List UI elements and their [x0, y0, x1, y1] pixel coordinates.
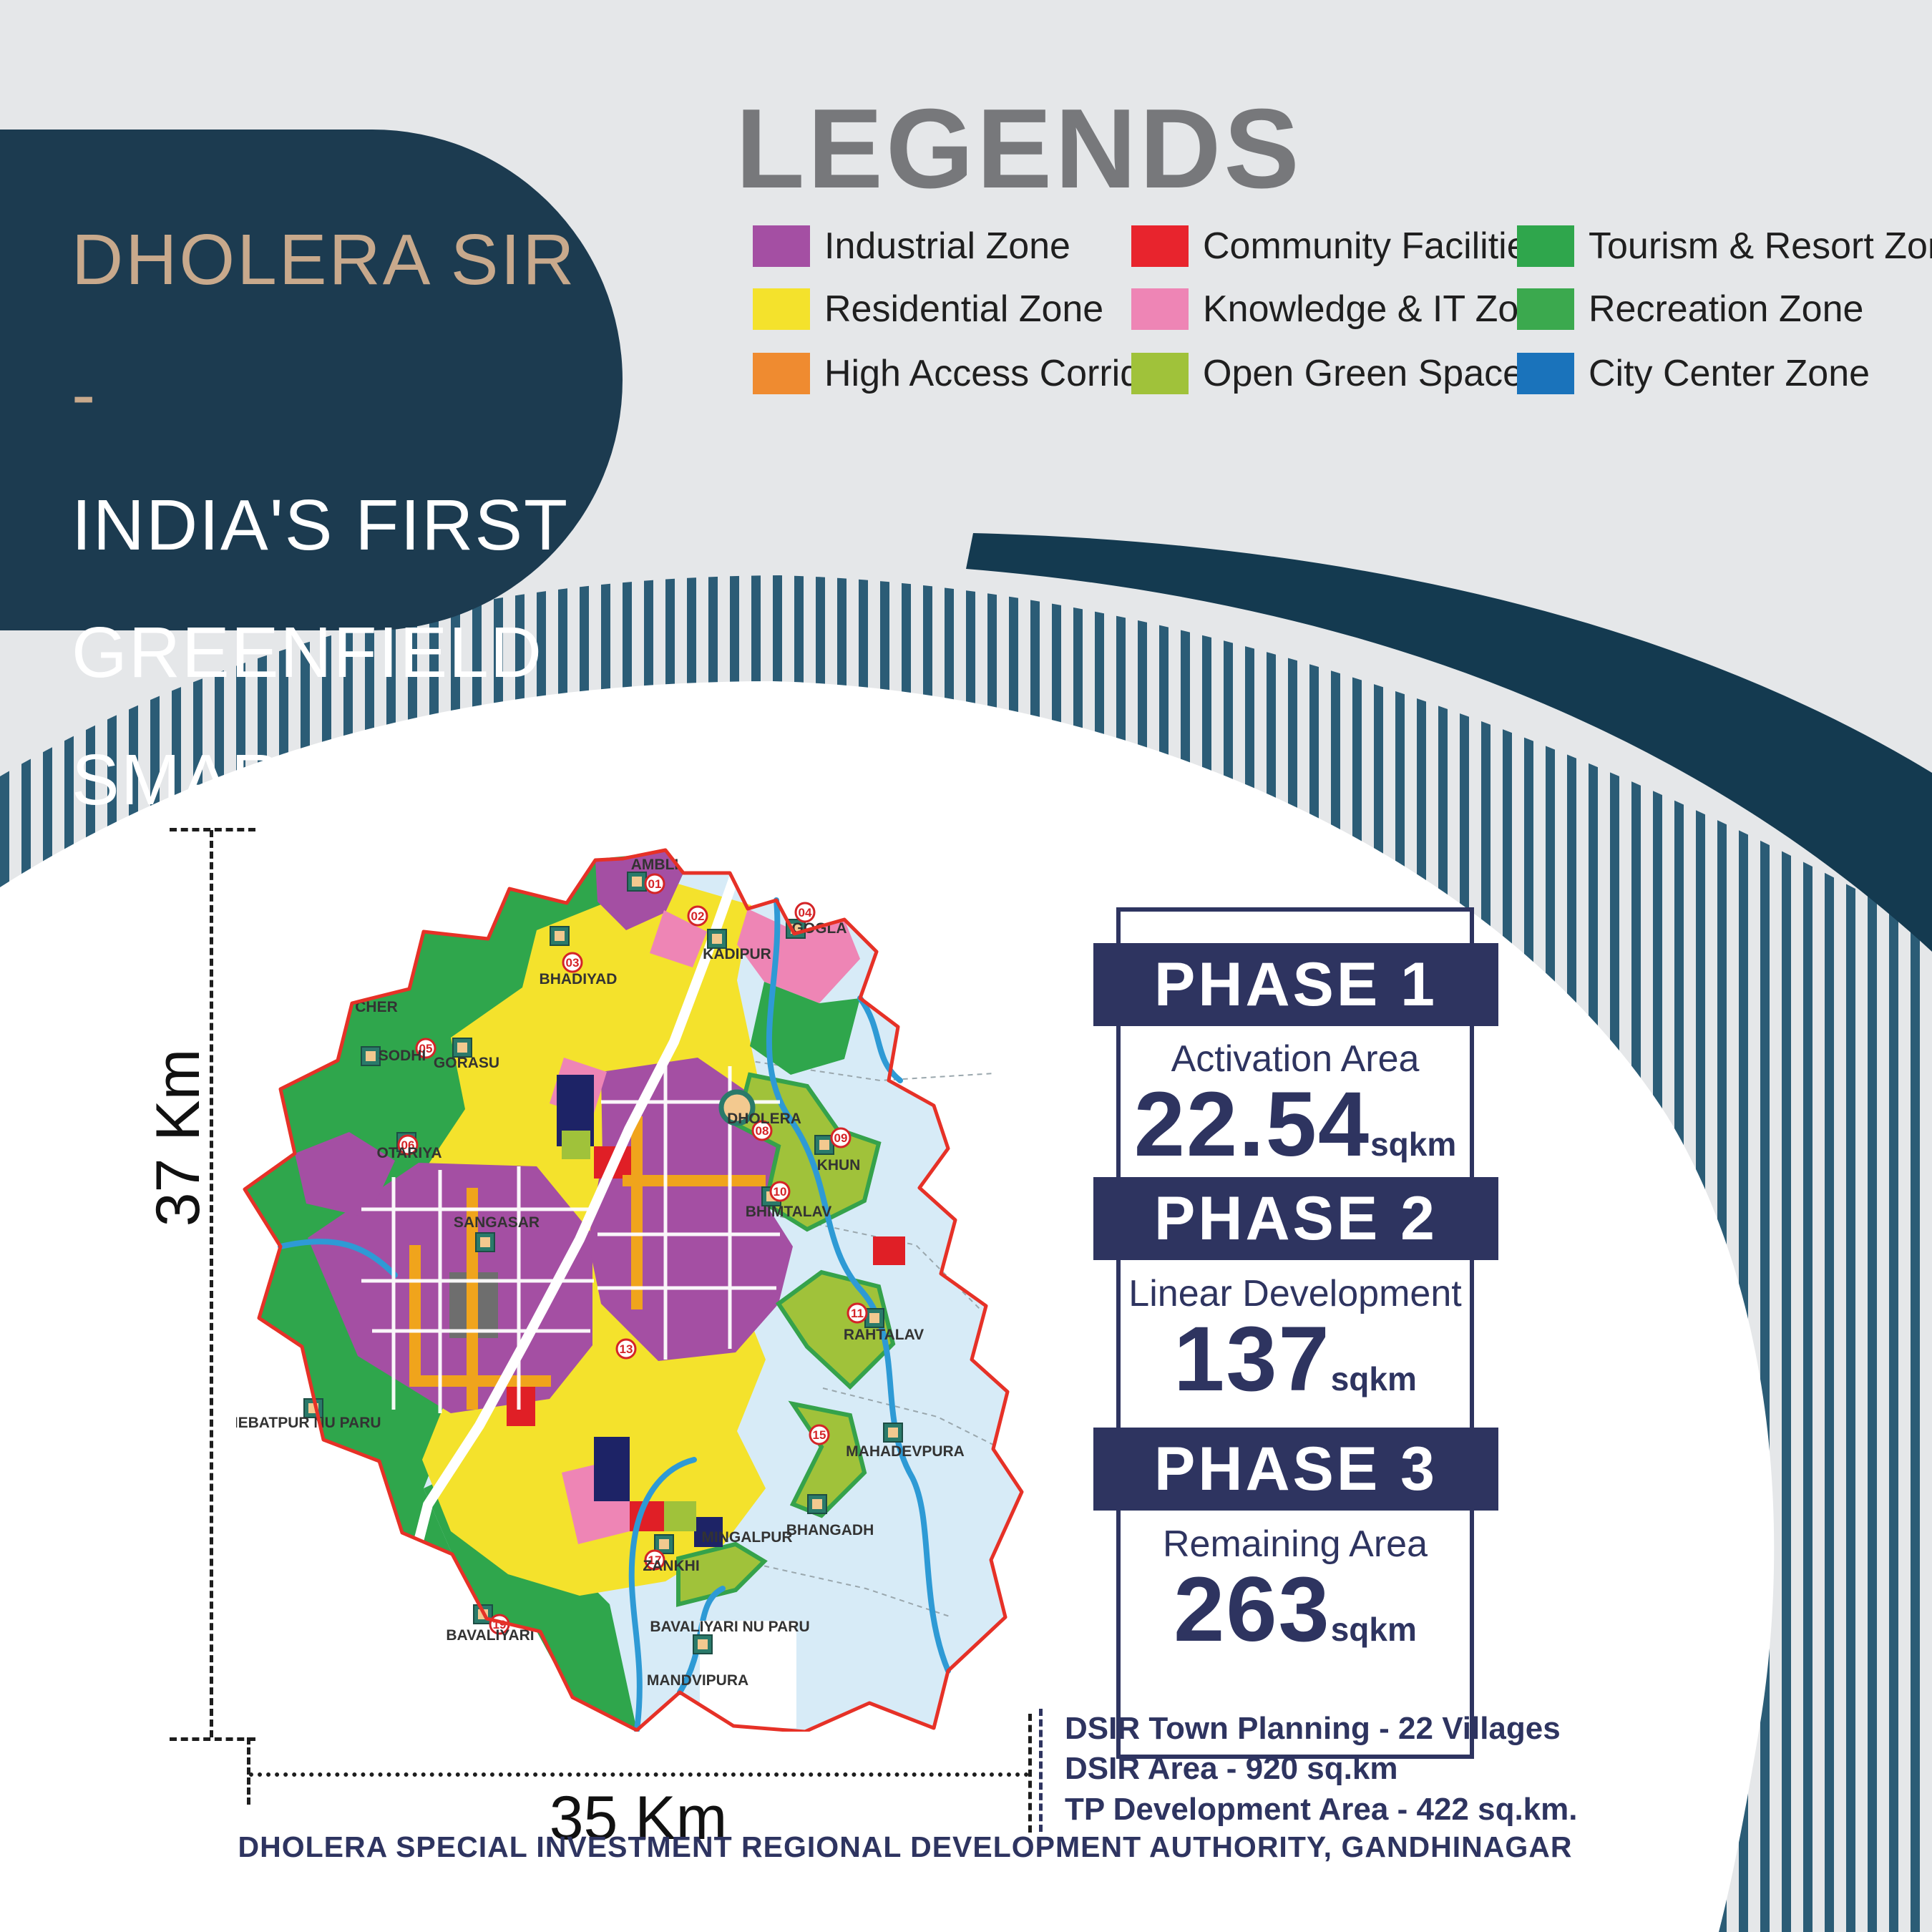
vertical-dimension-line — [210, 830, 213, 1737]
legend-item-residential: Residential Zone — [753, 288, 1103, 330]
vertical-dimension-top-tick — [170, 828, 255, 831]
svg-text:ZANKHI: ZANKHI — [643, 1558, 699, 1574]
legend-item-city-center: City Center Zone — [1517, 353, 1870, 394]
svg-text:02: 02 — [691, 909, 705, 923]
legend-item-label: Residential Zone — [810, 288, 1103, 331]
phase-3-unit: sqkm — [1331, 1610, 1417, 1649]
horizontal-dimension-left-tick — [247, 1737, 250, 1805]
residential-swatch — [753, 288, 810, 330]
svg-text:10: 10 — [774, 1185, 787, 1199]
industrial-swatch — [753, 225, 810, 267]
dsir-stats: DSIR Town Planning - 22 Villages DSIR Ar… — [1065, 1709, 1578, 1830]
horizontal-dimension-line — [249, 1772, 1029, 1777]
svg-text:HEBATPUR NU PARU: HEBATPUR NU PARU — [236, 1415, 381, 1431]
svg-text:SANGASAR: SANGASAR — [454, 1214, 540, 1231]
stat-tp-development-area: TP Development Area - 422 sq.km. — [1065, 1790, 1578, 1830]
svg-text:15: 15 — [813, 1428, 826, 1442]
svg-text:04: 04 — [799, 906, 812, 919]
legend-item-corridor: High Access Corridor — [753, 353, 1174, 394]
svg-text:BAVALIYARI: BAVALIYARI — [446, 1627, 534, 1644]
svg-text:MANDVIPURA: MANDVIPURA — [647, 1672, 748, 1689]
legend-item-tourism: Tourism & Resort Zone — [1517, 225, 1932, 267]
svg-text:MAHADEVPURA: MAHADEVPURA — [846, 1443, 965, 1460]
legend-item-community: Community Facilities — [1131, 225, 1546, 267]
phase-3-header: PHASE 3 — [1093, 1428, 1498, 1511]
svg-text:13: 13 — [620, 1342, 633, 1356]
city-center-swatch — [1517, 353, 1574, 394]
vertical-dimension-bottom-tick — [170, 1737, 255, 1741]
svg-text:OTARIYA: OTARIYA — [376, 1145, 441, 1161]
svg-text:09: 09 — [834, 1131, 848, 1145]
knowledge-swatch — [1131, 288, 1189, 330]
title-box: DHOLERA SIR - INDIA'S FIRST GREENFIELD S… — [0, 130, 623, 630]
legend-item-label: Industrial Zone — [810, 225, 1070, 268]
svg-text:01: 01 — [648, 877, 662, 891]
phase-2-number: 137 — [1174, 1307, 1331, 1412]
svg-text:BHANGADH: BHANGADH — [786, 1522, 874, 1538]
dholera-landuse-map: 01 02 03 04 05 06 08 09 10 11 13 15 17 1… — [236, 844, 1038, 1732]
svg-text:11: 11 — [851, 1307, 864, 1320]
legend-item-recreation: Recreation Zone — [1517, 288, 1863, 330]
svg-text:KHUN: KHUN — [817, 1157, 861, 1174]
tourism-swatch — [1517, 225, 1574, 267]
phase-3-value: 263 sqkm — [1116, 1557, 1474, 1662]
legend-item-label: City Center Zone — [1574, 352, 1870, 395]
phase-1-header: PHASE 1 — [1093, 943, 1498, 1026]
phase-2-header: PHASE 2 — [1093, 1177, 1498, 1260]
svg-text:BAVALIYARI NU PARU: BAVALIYARI NU PARU — [650, 1619, 809, 1635]
horizontal-dimension-right-tick — [1028, 1714, 1032, 1833]
stat-town-planning: DSIR Town Planning - 22 Villages — [1065, 1709, 1578, 1749]
phase-2-unit: sqkm — [1331, 1360, 1417, 1398]
phase-1-value: 22.54 sqkm — [1116, 1072, 1474, 1177]
open-green-swatch — [1131, 353, 1189, 394]
recreation-swatch — [1517, 288, 1574, 330]
legend-item-label: Tourism & Resort Zone — [1574, 225, 1932, 268]
title-line-3: SMART CITY — [72, 716, 623, 844]
phase-1-number: 22.54 — [1134, 1072, 1370, 1177]
height-dimension-label: 37 Km — [143, 1023, 215, 1252]
svg-text:MINGALPUR: MINGALPUR — [701, 1529, 792, 1546]
footer-authority: DHOLERA SPECIAL INVESTMENT REGIONAL DEVE… — [0, 1830, 1810, 1864]
legend-item-open-green: Open Green Space — [1131, 353, 1523, 394]
svg-text:DHOLERA: DHOLERA — [727, 1111, 801, 1127]
phase-1-unit: sqkm — [1370, 1125, 1456, 1163]
phase-3-number: 263 — [1174, 1557, 1331, 1662]
svg-text:KADIPUR: KADIPUR — [703, 946, 771, 962]
svg-text:RAHTALAV: RAHTALAV — [844, 1327, 924, 1343]
svg-text:BHADIYAD: BHADIYAD — [540, 971, 618, 987]
legend-item-label: Recreation Zone — [1574, 288, 1863, 331]
title-line-1: DHOLERA SIR - — [72, 192, 623, 462]
svg-text:SODHI: SODHI — [379, 1048, 426, 1064]
infographic-canvas: DHOLERA SIR - INDIA'S FIRST GREENFIELD S… — [0, 0, 1932, 1932]
legend-item-industrial: Industrial Zone — [753, 225, 1070, 267]
legend-item-label: Knowledge & IT Zone — [1189, 288, 1560, 331]
legend-item-knowledge: Knowledge & IT Zone — [1131, 288, 1560, 330]
svg-text:BHIMTALAV: BHIMTALAV — [746, 1204, 832, 1220]
legend-item-label: Community Facilities — [1189, 225, 1546, 268]
legend-item-label: Open Green Space — [1189, 352, 1523, 395]
stats-dashed-separator — [1039, 1709, 1043, 1832]
stat-dsir-area: DSIR Area - 920 sq.km — [1065, 1749, 1578, 1789]
legend-item-label: High Access Corridor — [810, 352, 1174, 395]
title-line-2: INDIA'S FIRST GREENFIELD — [72, 462, 623, 716]
svg-text:03: 03 — [566, 956, 580, 970]
corridor-swatch — [753, 353, 810, 394]
community-swatch — [1131, 225, 1189, 267]
legend-heading: LEGENDS — [736, 84, 1302, 214]
phase-2-value: 137 sqkm — [1116, 1307, 1474, 1412]
svg-text:GORASU: GORASU — [434, 1055, 499, 1071]
